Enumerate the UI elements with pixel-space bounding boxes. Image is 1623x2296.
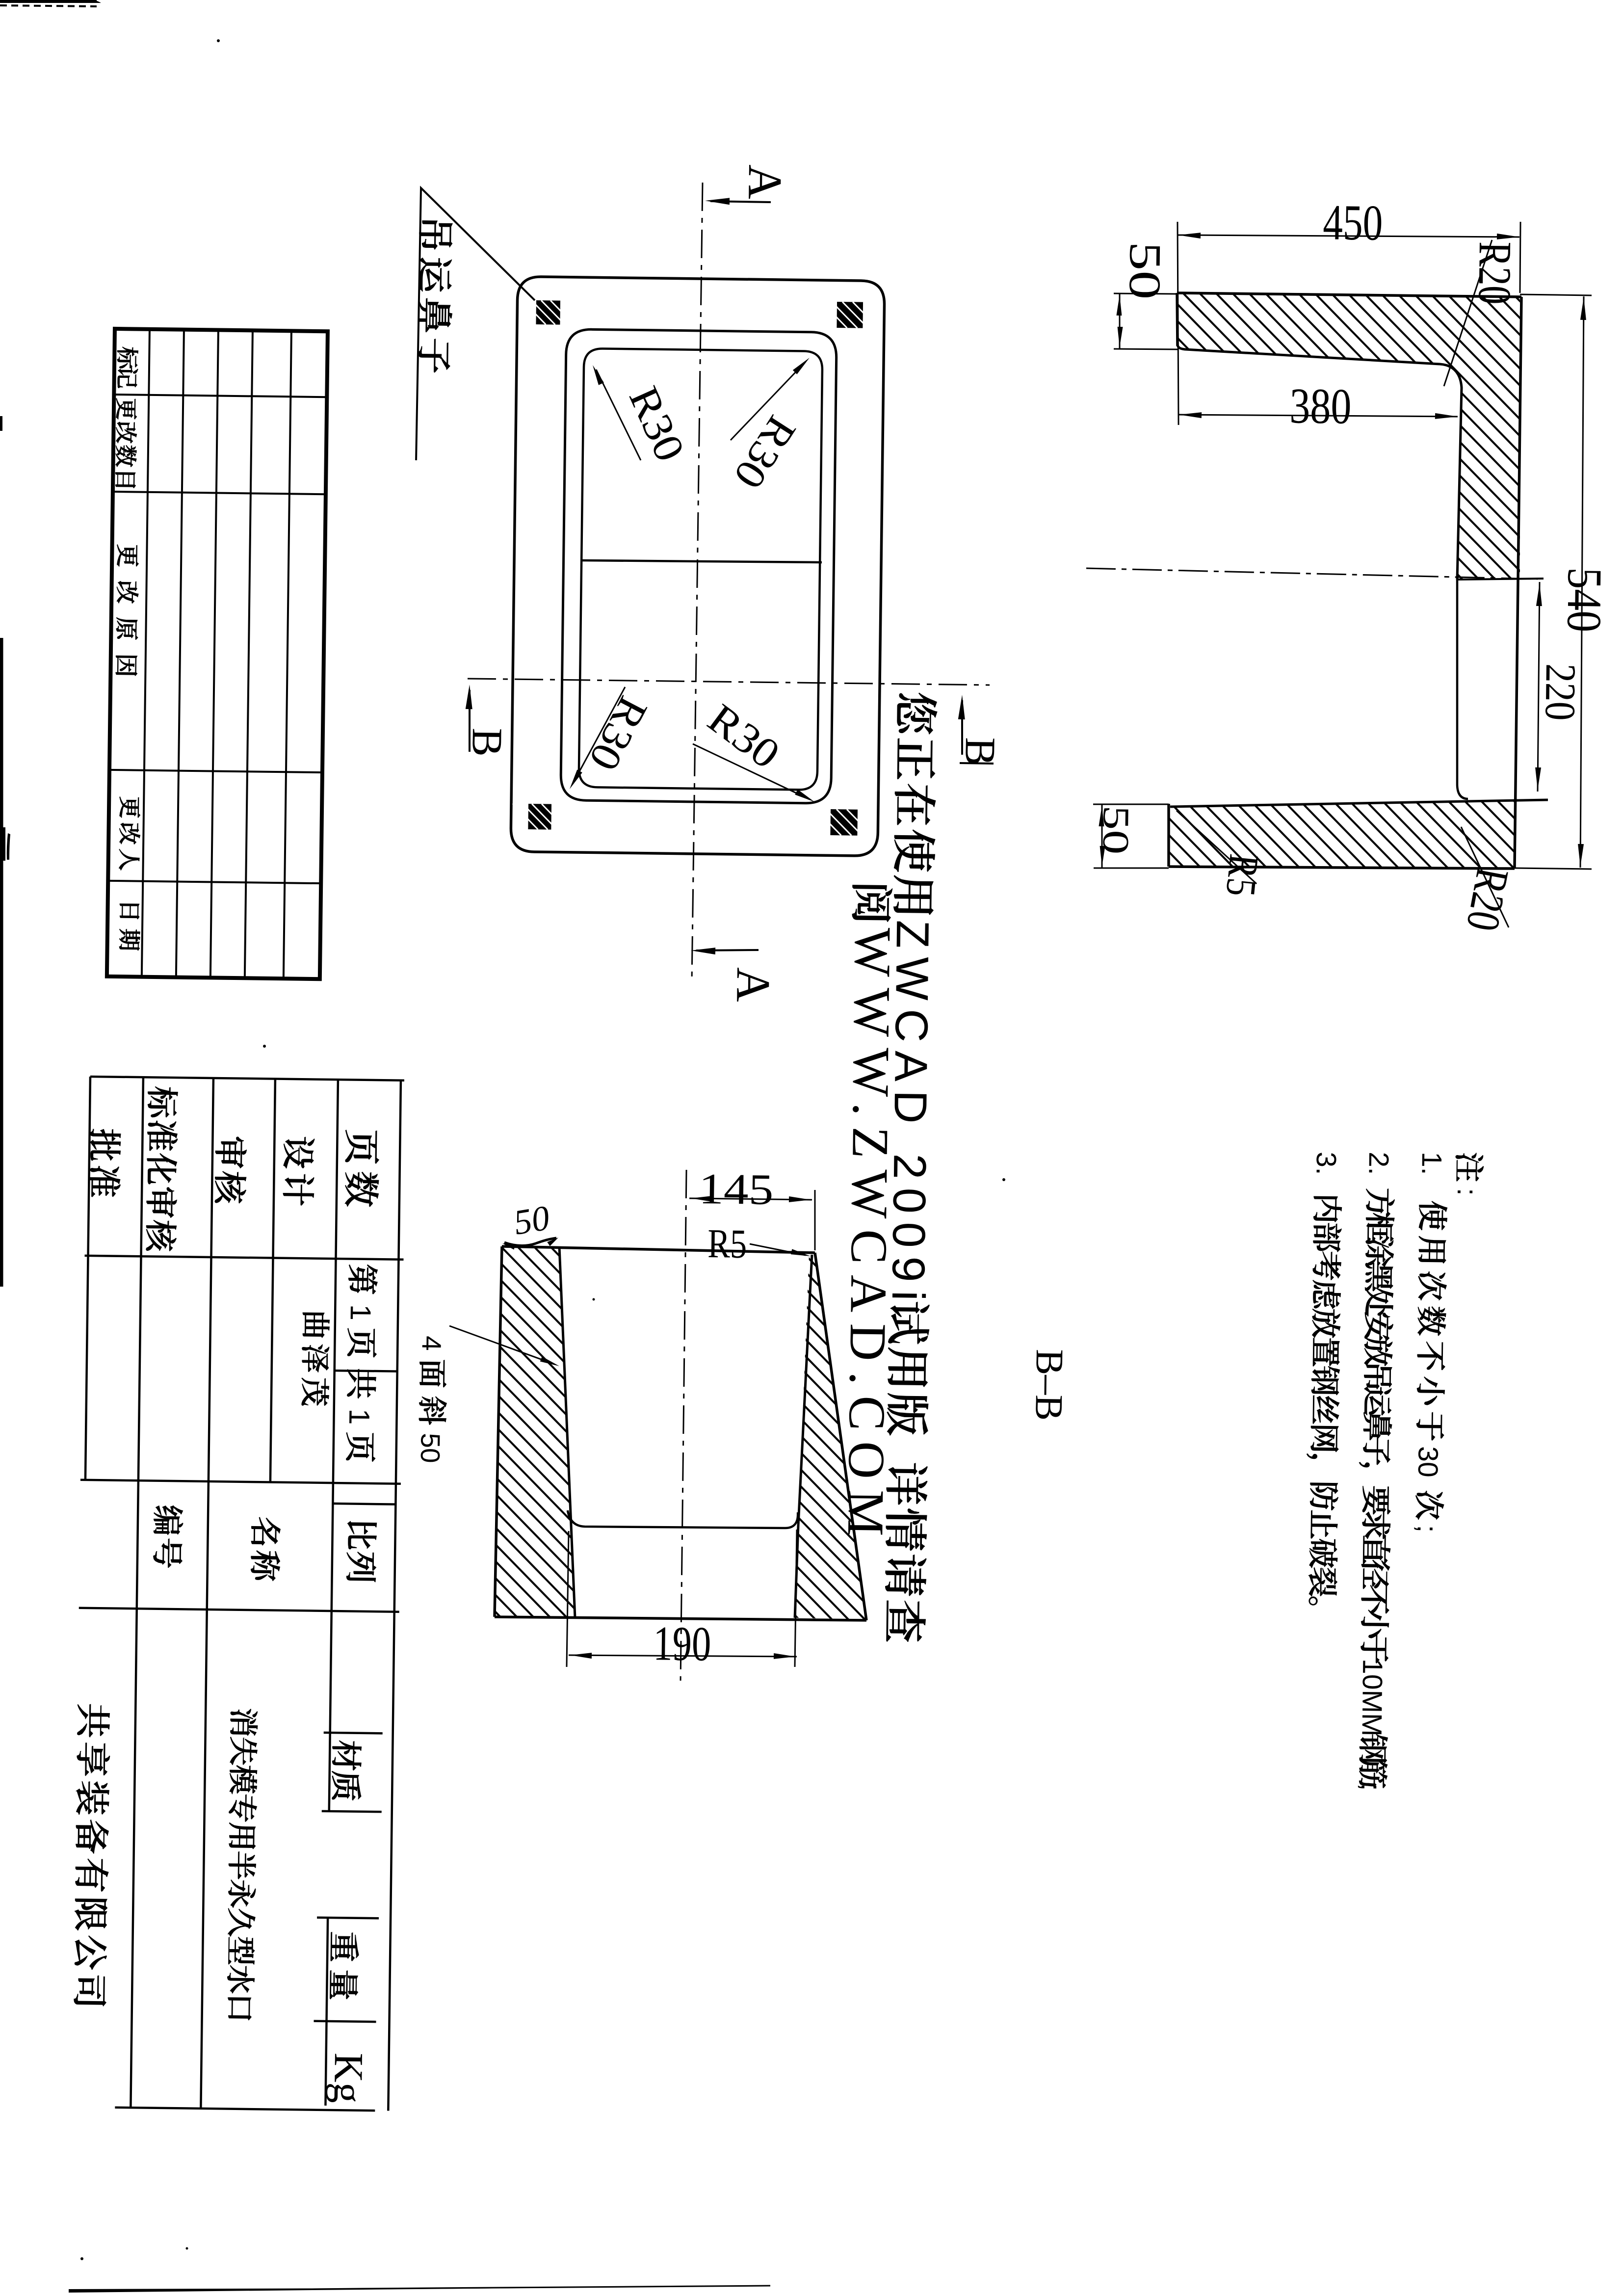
- svg-text:145: 145: [699, 1165, 774, 1214]
- svg-text:380: 380: [1289, 378, 1352, 435]
- svg-text:;: ;: [1355, 1783, 1387, 1792]
- svg-text:450: 450: [1323, 194, 1383, 251]
- svg-text:WWW.ZWCAD.COM: WWW.ZWCAD.COM: [837, 927, 902, 1536]
- svg-text:50: 50: [415, 1433, 446, 1463]
- svg-text:190: 190: [653, 1616, 711, 1671]
- svg-text:1: 1: [343, 1408, 375, 1425]
- svg-text:3.: 3.: [1310, 1152, 1342, 1175]
- svg-text:50: 50: [511, 1198, 552, 1242]
- svg-text:30: 30: [1412, 1446, 1444, 1478]
- svg-text:A: A: [726, 967, 780, 1003]
- svg-text:A: A: [738, 164, 791, 200]
- svg-text:10MM: 10MM: [1356, 1659, 1388, 1737]
- svg-text:1: 1: [344, 1304, 377, 1321]
- svg-text:R20: R20: [1468, 241, 1521, 305]
- svg-text:B: B: [463, 728, 511, 757]
- svg-text:Kg: Kg: [325, 2053, 371, 2104]
- svg-text:1.: 1.: [1415, 1152, 1447, 1175]
- svg-text:R5: R5: [1217, 852, 1268, 898]
- svg-text:2.: 2.: [1362, 1152, 1394, 1175]
- svg-text:220: 220: [1536, 663, 1584, 721]
- svg-text:B: B: [956, 737, 1004, 766]
- svg-text:50: 50: [1120, 241, 1171, 300]
- svg-text::: :: [1451, 1188, 1483, 1196]
- svg-text:;: ;: [1412, 1525, 1443, 1533]
- svg-text:R5: R5: [707, 1221, 747, 1267]
- svg-text:B–B: B–B: [1027, 1349, 1071, 1421]
- svg-text:4: 4: [417, 1336, 447, 1351]
- svg-text:540: 540: [1557, 567, 1612, 633]
- svg-text:50: 50: [1095, 805, 1137, 855]
